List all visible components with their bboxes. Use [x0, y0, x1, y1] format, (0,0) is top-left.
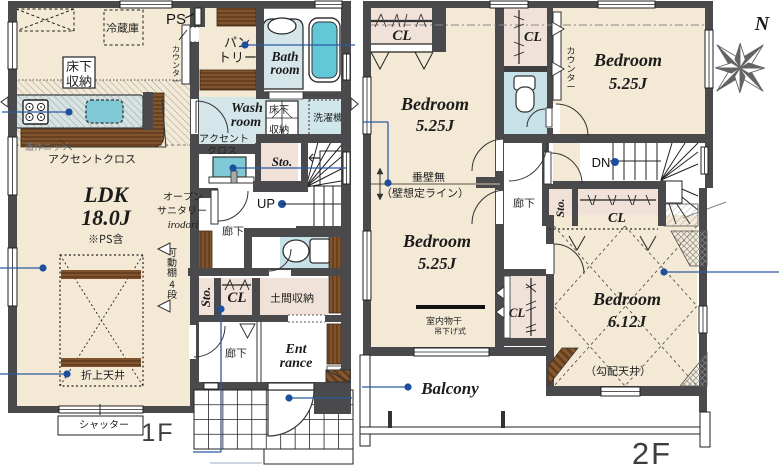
svg-text:Balcony: Balcony: [420, 379, 479, 398]
svg-text:UP: UP: [257, 196, 275, 211]
svg-text:irodori: irodori: [168, 219, 199, 231]
svg-text:6.12J: 6.12J: [608, 312, 647, 331]
svg-text:CL: CL: [509, 305, 526, 320]
svg-text:Bedroom: Bedroom: [592, 289, 661, 309]
svg-text:Sto.: Sto.: [553, 198, 567, 217]
svg-text:CL: CL: [608, 211, 626, 226]
svg-text:rance: rance: [280, 356, 313, 371]
svg-text:CL: CL: [524, 30, 542, 45]
svg-text:Bedroom: Bedroom: [593, 50, 662, 70]
svg-text:5.25J: 5.25J: [609, 74, 648, 93]
svg-text:LDK: LDK: [83, 182, 129, 207]
svg-text:room: room: [231, 115, 261, 130]
svg-text:Bedroom: Bedroom: [402, 231, 471, 251]
svg-text:room: room: [270, 62, 299, 77]
svg-text:1F: 1F: [141, 419, 174, 447]
svg-text:Sto.: Sto.: [198, 287, 213, 308]
svg-text:2F: 2F: [632, 436, 672, 469]
svg-text:Wash: Wash: [231, 101, 263, 116]
svg-text:N: N: [754, 13, 771, 35]
svg-text:CL: CL: [392, 28, 411, 44]
svg-text:DN: DN: [592, 155, 611, 170]
svg-text:CL: CL: [227, 290, 246, 306]
svg-text:5.25J: 5.25J: [418, 254, 457, 273]
svg-text:Ent: Ent: [284, 342, 307, 357]
svg-text:Sto.: Sto.: [272, 154, 293, 169]
svg-text:18.0J: 18.0J: [81, 205, 132, 230]
svg-text:5.25J: 5.25J: [416, 116, 455, 135]
svg-text:Bedroom: Bedroom: [400, 94, 469, 114]
